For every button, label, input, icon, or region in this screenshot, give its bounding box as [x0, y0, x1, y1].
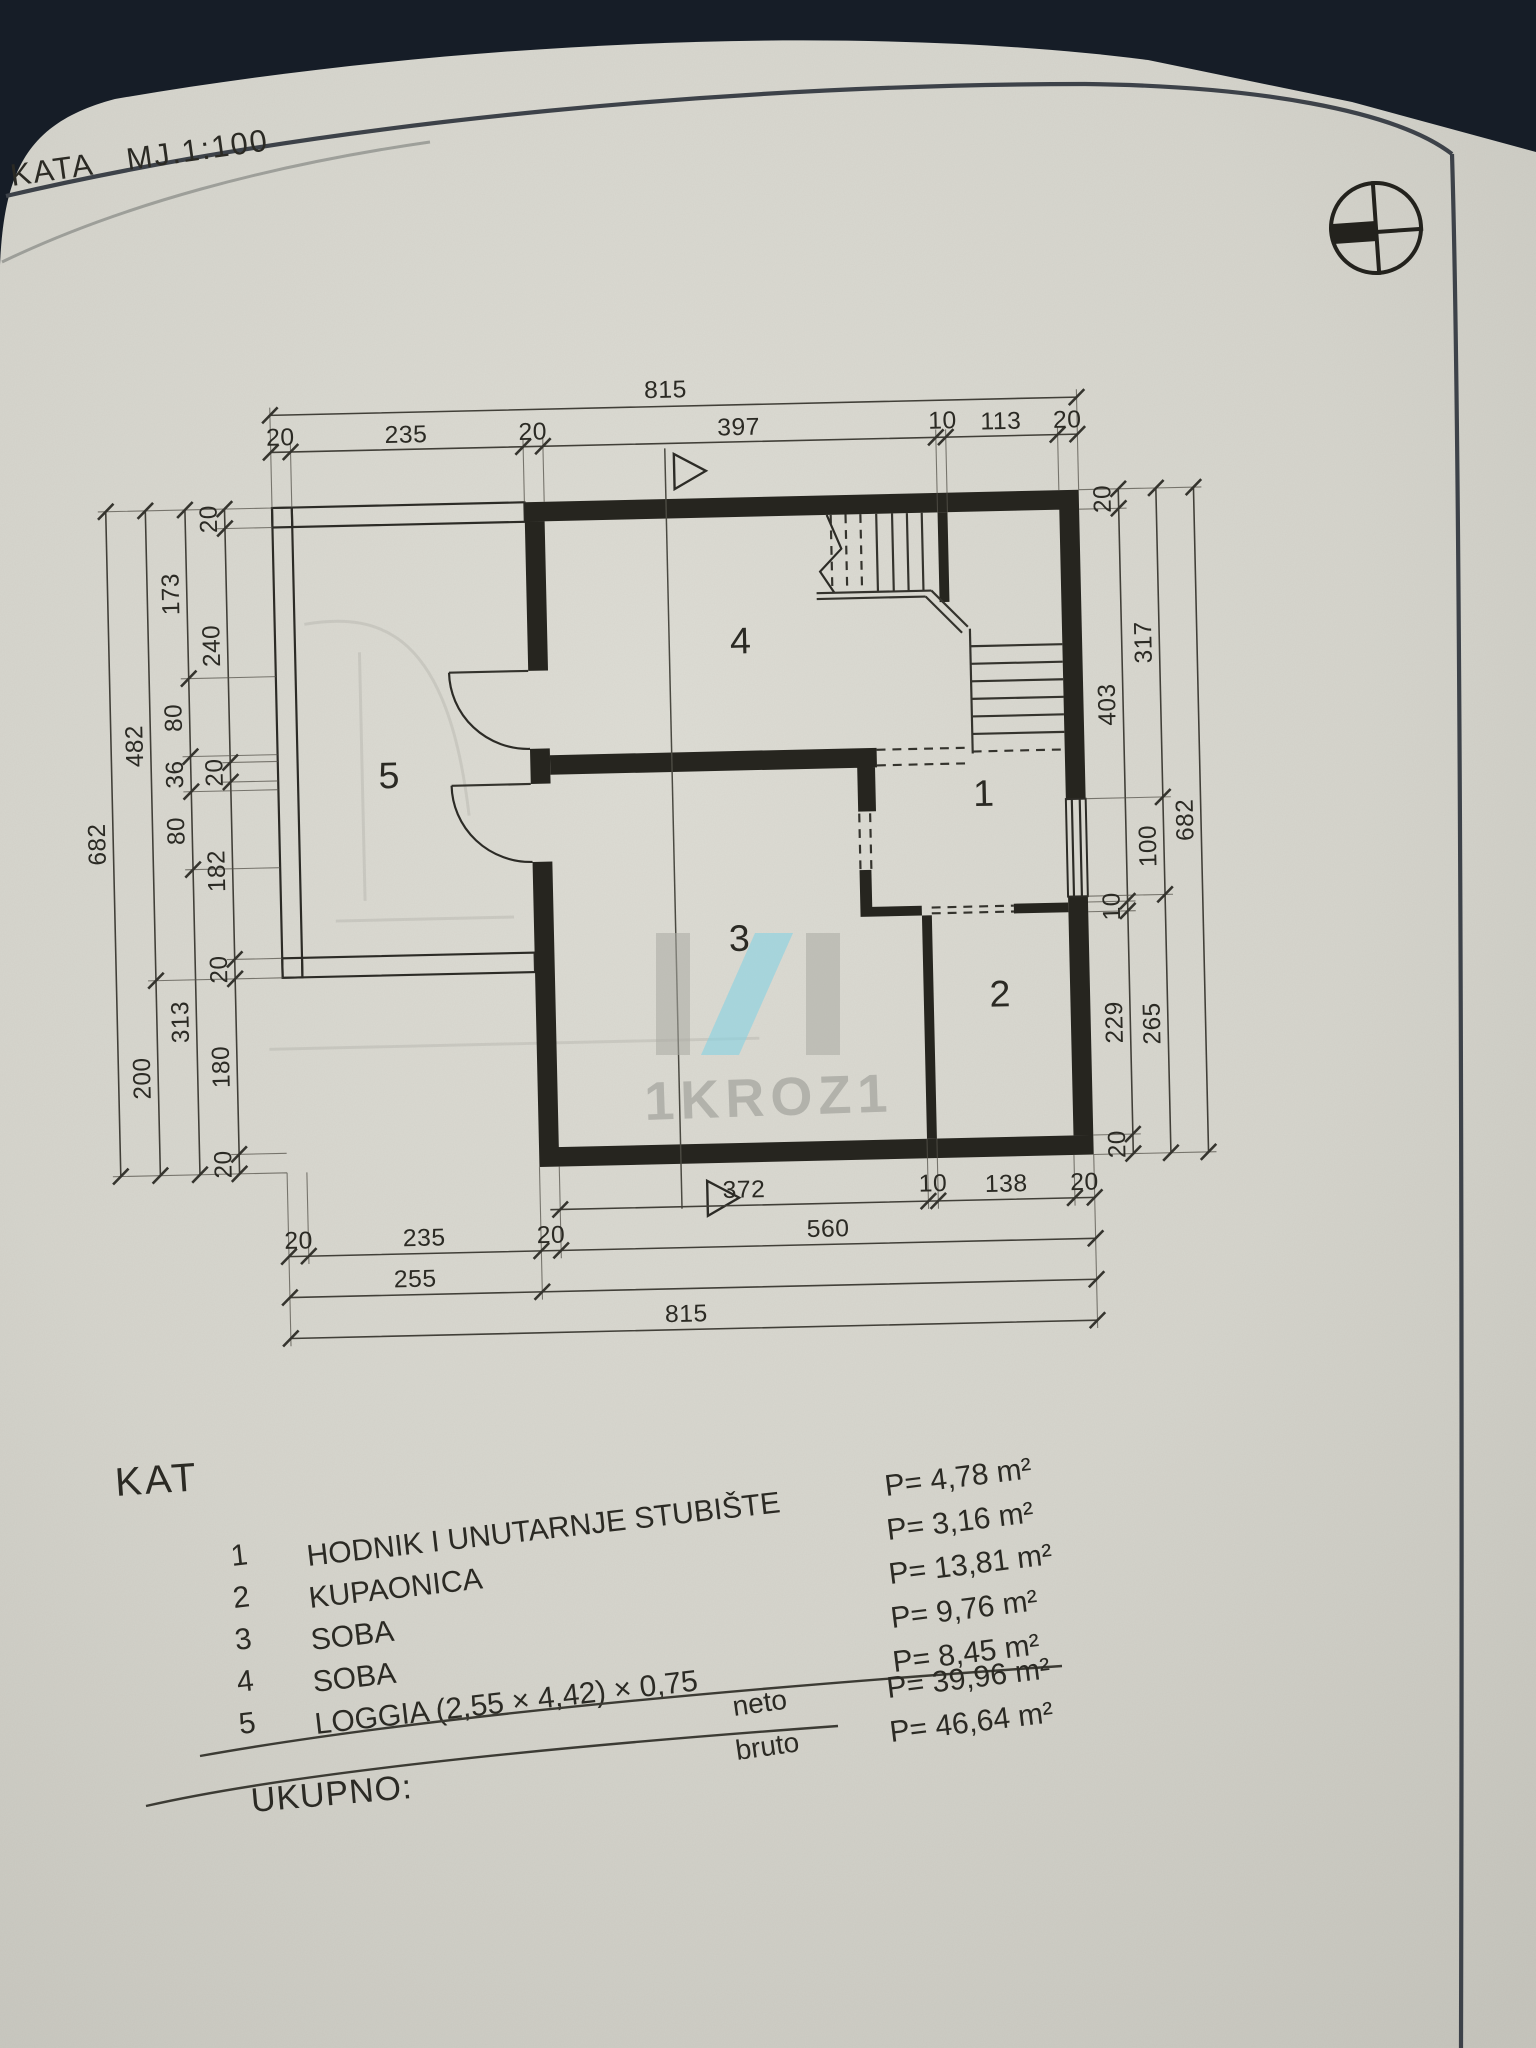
- dim-bottom-mid-0: 20: [284, 1227, 313, 1254]
- dim-left-inner-6: 20: [210, 1150, 238, 1179]
- dim-left-inner-1: 240: [198, 625, 226, 668]
- dim-top-3: 397: [717, 414, 760, 442]
- dim-bottom-inner-2: 138: [985, 1170, 1028, 1198]
- dim-left-outer-0: 482: [121, 725, 149, 768]
- photographed-floorplan-sheet: KATA MJ.1:100: [0, 0, 1536, 2048]
- dim-right-inner-2: 10: [1098, 892, 1126, 921]
- watermark-bar-left: [656, 933, 690, 1055]
- dim-top-5: 113: [980, 408, 1022, 436]
- room-label-1: 1: [973, 772, 995, 814]
- room-label-4: 4: [729, 619, 751, 661]
- dim-right-inner-4: 20: [1104, 1130, 1132, 1159]
- watermark-bar-right: [806, 933, 840, 1055]
- dim-bottom-inner-1: 10: [918, 1170, 947, 1197]
- dim-top-1: 235: [384, 421, 427, 449]
- window-right: [1066, 799, 1088, 897]
- dim-left-mid-0: 173: [157, 573, 185, 616]
- dim-bottom-inner-3: 20: [1070, 1169, 1099, 1196]
- dim-right-mid-2: 265: [1138, 1002, 1166, 1045]
- watermark-text: 1KROZ1: [643, 1063, 894, 1132]
- dim-left-total: 682: [84, 823, 112, 866]
- dim-right-inner-0: 20: [1089, 485, 1117, 514]
- dim-left-inner-0: 20: [195, 505, 223, 534]
- dim-top-6: 20: [1053, 406, 1082, 433]
- floorplan-photo-canvas: KATA MJ.1:100: [0, 0, 1536, 2048]
- dim-top-total: 815: [644, 376, 687, 404]
- dim-bottom-total: 815: [665, 1300, 708, 1328]
- dim-left-inner-4: 20: [206, 955, 234, 984]
- dim-left-mid-4: 313: [167, 1001, 195, 1044]
- dim-bottom-inner-0: 372: [722, 1176, 765, 1204]
- dim-left-mid-1: 80: [160, 704, 188, 733]
- room-label-2: 2: [989, 972, 1011, 1014]
- dim-bottom-mid-1: 235: [403, 1224, 446, 1252]
- room-label-5: 5: [378, 754, 400, 796]
- dim-top-4: 10: [928, 407, 957, 434]
- dim-left-inner-5: 180: [208, 1046, 236, 1089]
- dim-left-inner-3: 182: [203, 850, 231, 893]
- dim-right-total: 682: [1171, 798, 1199, 841]
- dim-bottom-mid-3: 560: [806, 1215, 849, 1243]
- dim-right-inner-1: 403: [1094, 683, 1122, 726]
- legend-heading: KAT: [114, 1455, 201, 1505]
- dim-left-mid-3: 80: [163, 817, 191, 846]
- dim-bottom-outer: 255: [394, 1266, 437, 1294]
- dim-right-mid-0: 317: [1130, 621, 1158, 664]
- dim-top-2: 20: [518, 419, 547, 446]
- dim-left-mid-2: 36: [162, 760, 190, 789]
- dim-right-mid-1: 100: [1134, 825, 1162, 868]
- dim-top-0: 20: [266, 424, 295, 451]
- dim-right-inner-3: 229: [1101, 1001, 1129, 1044]
- dim-left-inner-2: 20: [201, 758, 229, 787]
- dim-bottom-mid-2: 20: [536, 1222, 565, 1249]
- dim-left-outer-1: 200: [129, 1057, 157, 1100]
